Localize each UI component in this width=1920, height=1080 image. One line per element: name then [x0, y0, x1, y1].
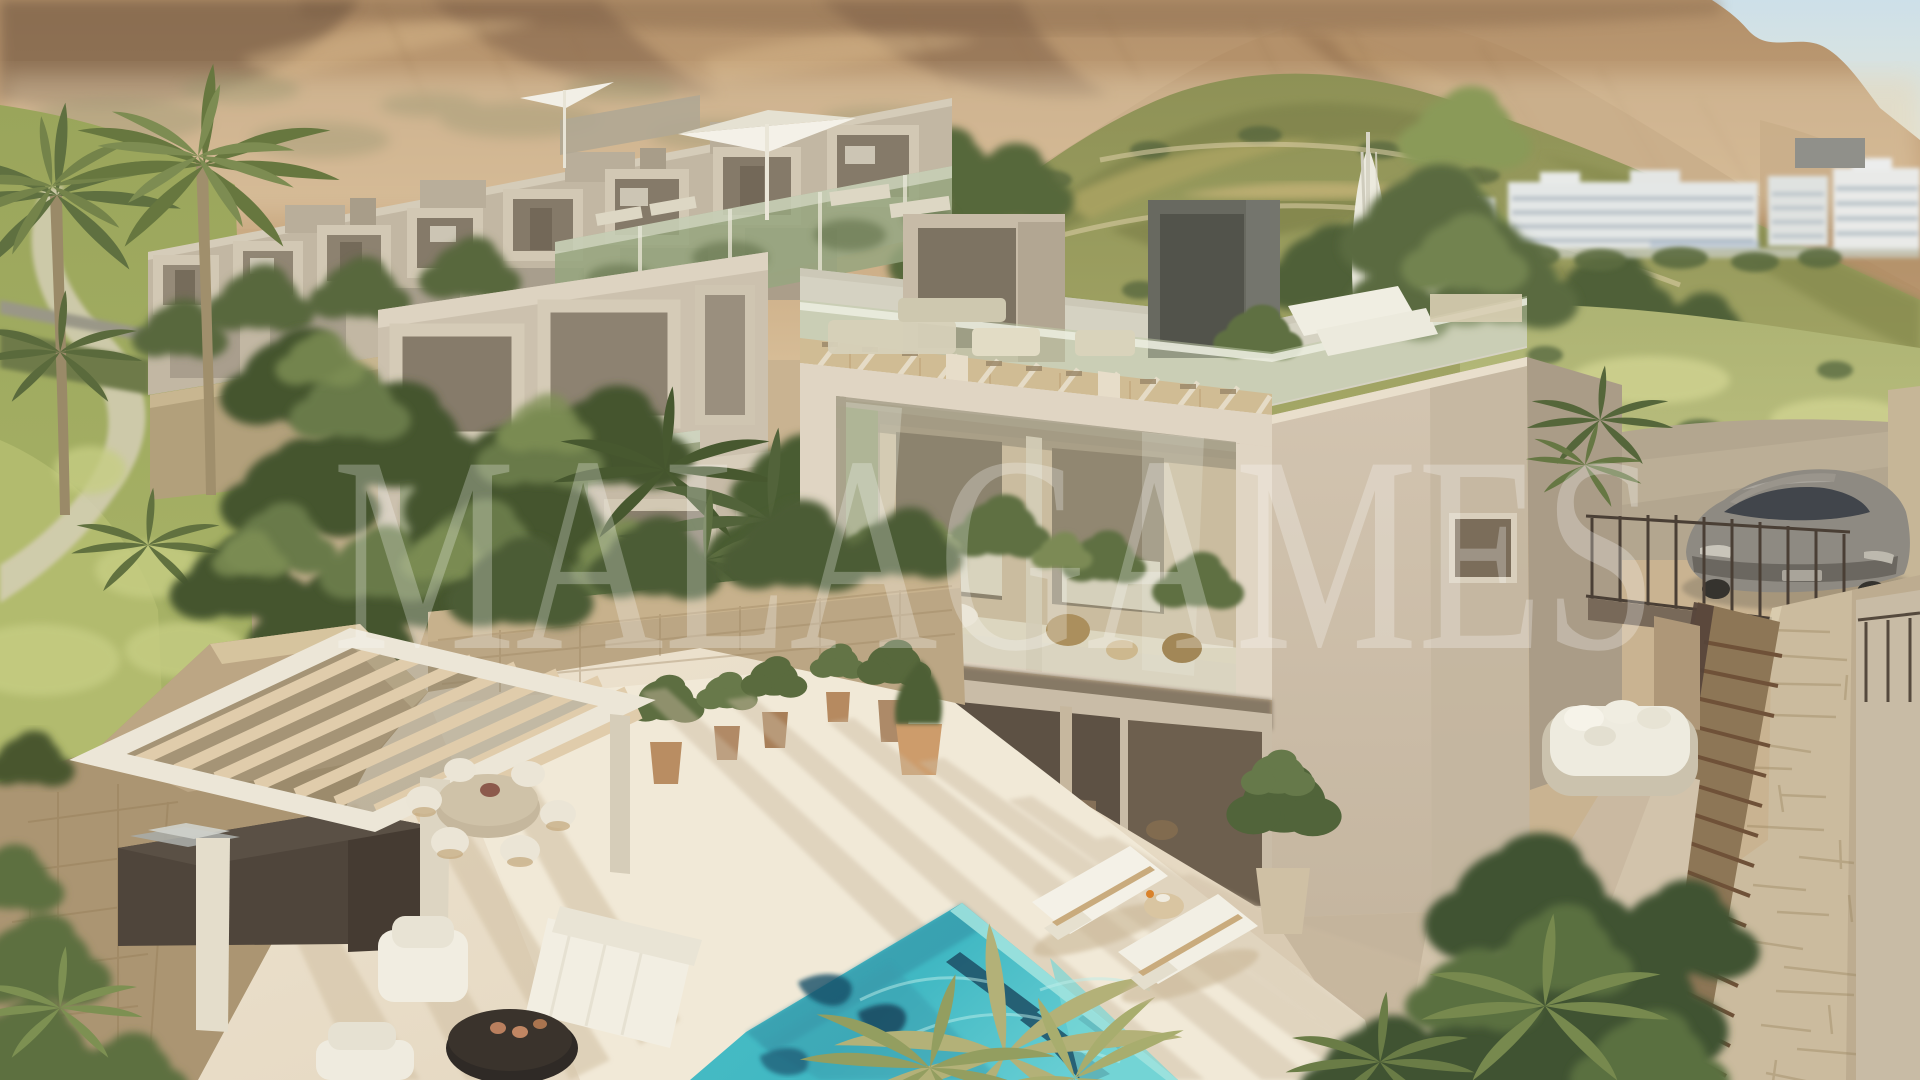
svg-text:MALAGAMES: MALAGAMES	[333, 398, 1658, 709]
